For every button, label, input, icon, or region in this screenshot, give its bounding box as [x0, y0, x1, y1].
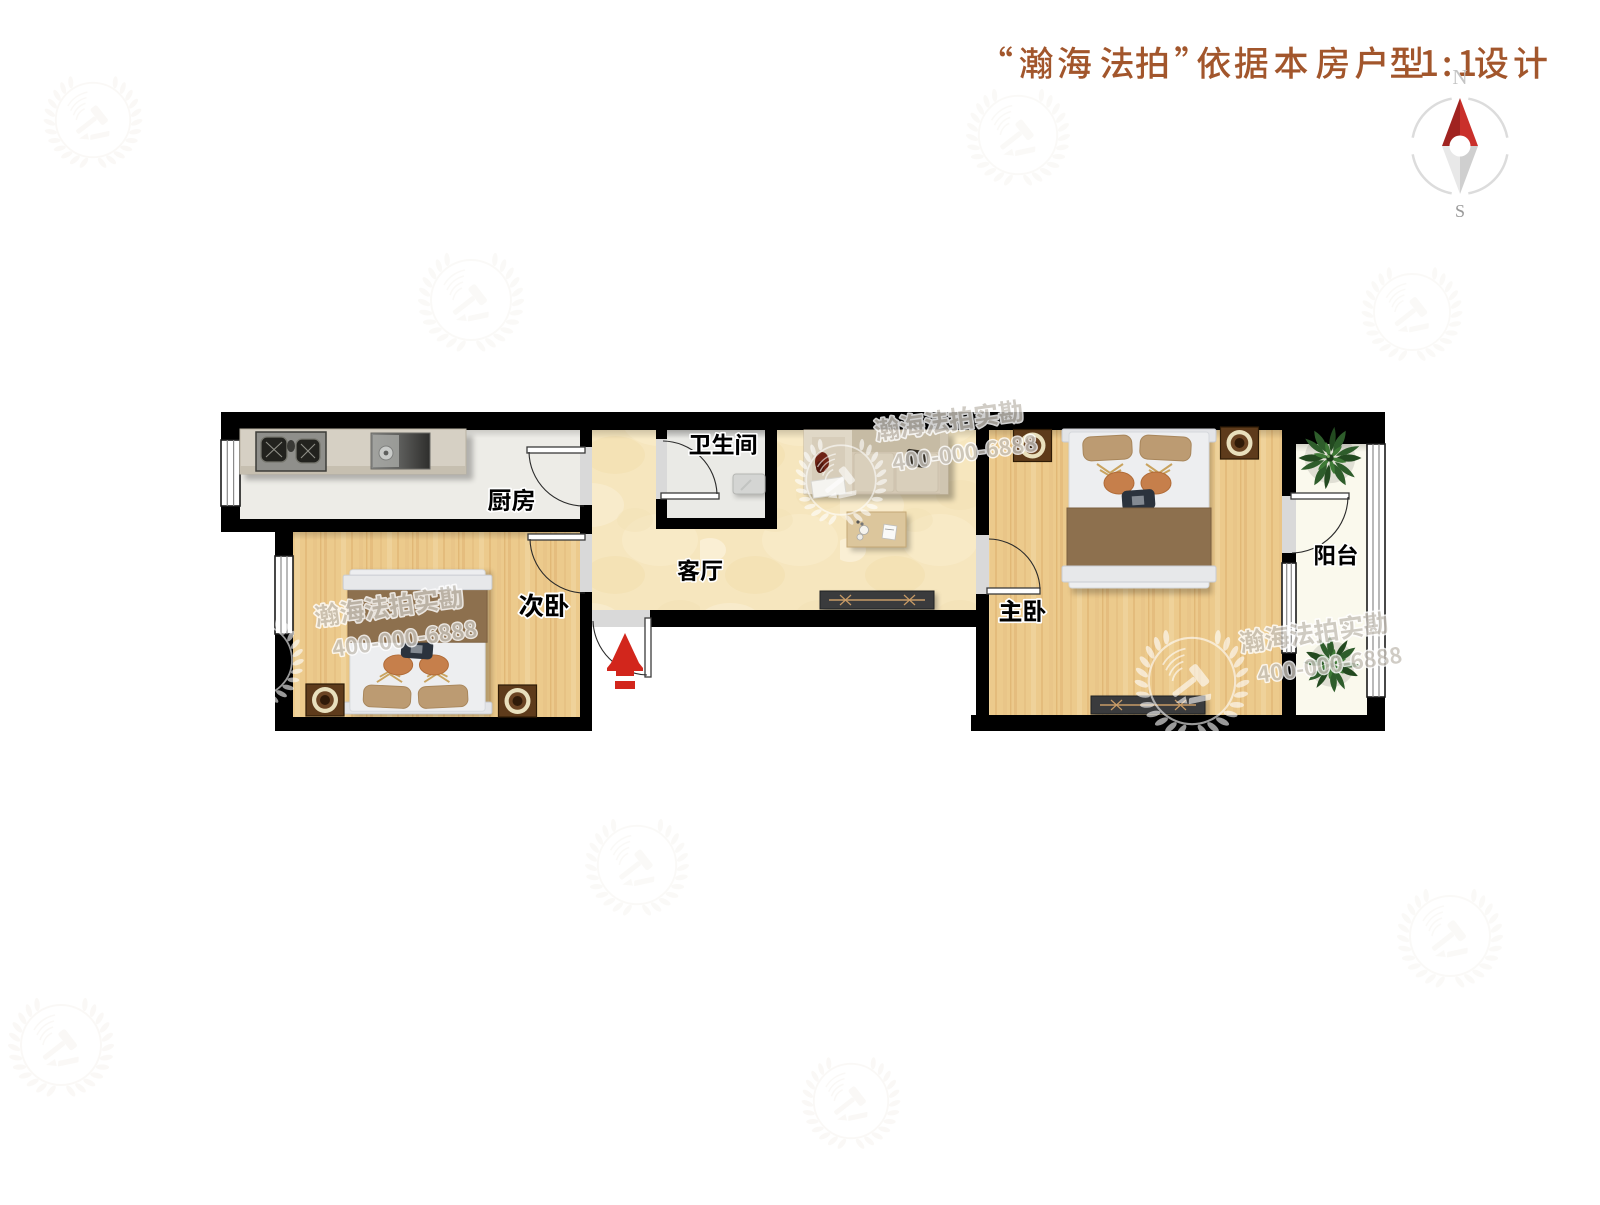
svg-text:S: S [1455, 201, 1465, 221]
svg-text:N: N [1452, 65, 1467, 89]
